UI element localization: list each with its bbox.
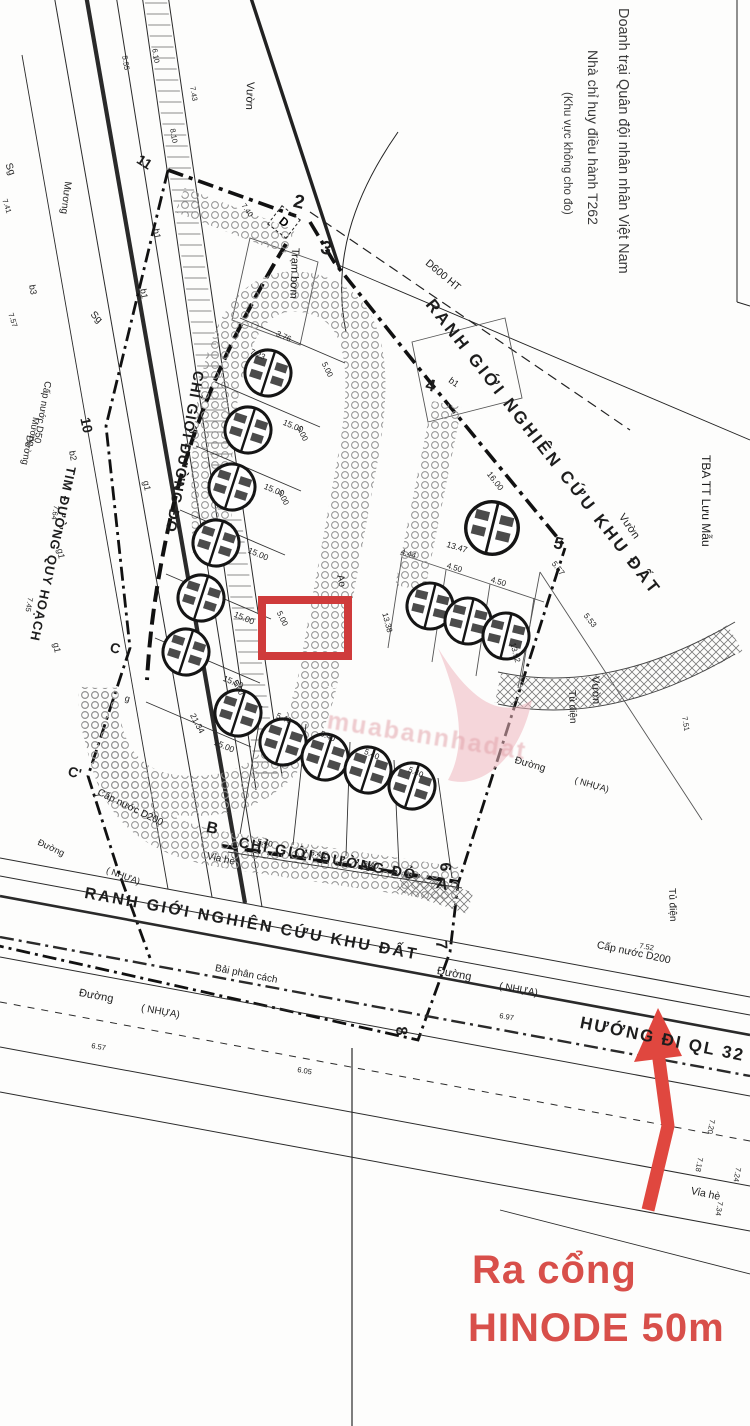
plot-code-b1-2: b1	[138, 288, 149, 299]
plot-code-b3: b3	[27, 284, 38, 295]
spot-height: 7.20	[706, 1119, 716, 1135]
plot-code-g1-1: g1	[141, 480, 152, 491]
plot-code-g1-3: g1	[51, 642, 62, 653]
exit-note-line2: HINODE 50m	[468, 1306, 725, 1351]
label-ao: Ao	[334, 574, 346, 588]
note-military-line1: Doanh trại Quân đội nhân nhân Việt Nam	[616, 8, 631, 274]
spot-height: 8.10	[169, 128, 179, 144]
label-tram-bom: Trạm bơm	[287, 248, 300, 299]
spot-height: 6.10	[151, 48, 161, 64]
spot-height: 6.97	[499, 1012, 515, 1022]
spot-height: 5.55	[121, 55, 131, 71]
plot-code-b2: b2	[67, 450, 78, 461]
plot-code-b1-1: b1	[151, 228, 162, 239]
red-highlight-box	[258, 596, 352, 660]
asphalt-hatch-strip	[498, 622, 735, 710]
lot-marker-circle	[460, 496, 524, 560]
point-marker-10: 10	[78, 416, 95, 434]
spot-height: 6.05	[297, 1066, 313, 1076]
label-tu-dien-1: Tủ điện	[566, 690, 577, 724]
point-marker-D: D	[276, 214, 291, 230]
point-marker-6: 6	[436, 862, 453, 872]
point-marker-7: 7	[432, 940, 449, 950]
label-tba-substation: TBA TT Lưu Mẫu	[700, 455, 712, 547]
spot-height: 7.18	[694, 1157, 704, 1173]
spot-height: 7.43	[189, 86, 199, 102]
note-military-line2: Nhà chỉ huy điều hành T262	[586, 50, 600, 225]
exit-note-line1: Ra cổng	[472, 1248, 637, 1293]
spot-height: 7.24	[732, 1167, 742, 1183]
plot-code-g1-2: g1	[55, 548, 66, 559]
spot-height: 7.52	[639, 942, 655, 952]
spot-height: 7.64	[50, 505, 60, 521]
spot-height: 7.45	[24, 597, 34, 613]
spot-height: 6.57	[91, 1042, 107, 1052]
point-marker-8: 8	[392, 1026, 409, 1036]
label-vuon-mid: Vườn	[589, 676, 601, 704]
lot-marker-circle	[172, 569, 230, 627]
spot-height: 7.34	[714, 1201, 724, 1217]
label-vuon-top: Vườn	[243, 82, 255, 110]
label-tu-dien-2: Tủ điện	[666, 888, 677, 922]
spot-height: 7.51	[681, 716, 691, 732]
site-plan-scan: Doanh trại Quân đội nhân nhân Việt Nam N…	[0, 0, 750, 1426]
note-military-line3: (Khu vực không cho đo)	[561, 92, 573, 215]
